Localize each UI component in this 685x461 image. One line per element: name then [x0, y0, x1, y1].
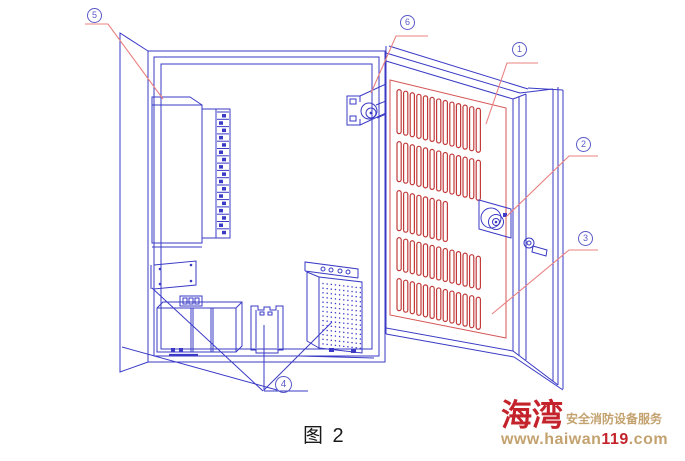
mounting-panel	[152, 97, 216, 247]
cabinet-body	[120, 33, 385, 372]
callout-4-label: 4	[281, 380, 287, 390]
callout-6-label: 6	[405, 18, 410, 27]
callout-2: 2	[576, 137, 591, 152]
watermark-url-suffix: .com	[629, 431, 668, 448]
watermark-url-number: 119	[601, 431, 628, 448]
hinge	[347, 84, 386, 125]
din-terminal	[251, 306, 283, 353]
callout-6: 6	[400, 15, 415, 30]
callout-4: 4	[275, 376, 292, 393]
door-latch	[524, 238, 547, 256]
relay-plate	[151, 261, 196, 289]
watermark-url[interactable]: www.haiwan119.com	[501, 431, 683, 449]
callout-5: 5	[87, 8, 102, 23]
callout-3-label: 3	[583, 234, 588, 243]
cabinet-door	[386, 46, 563, 390]
watermark-url-prefix: www.haiwan	[501, 431, 601, 448]
callout-3: 3	[578, 231, 593, 246]
figure-canvas: 5 6 1 2 3 4 图 2 海湾 安全消防设备服务 www.haiwan11…	[0, 0, 685, 461]
callout-2-label: 2	[581, 140, 586, 149]
callout-5-label: 5	[92, 11, 97, 20]
callout-1: 1	[512, 42, 527, 57]
callout-1-label: 1	[517, 45, 522, 54]
watermark-tagline: 安全消防设备服务	[566, 410, 662, 427]
watermark-brand-line: 海湾 安全消防设备服务	[501, 401, 683, 430]
watermark: 海湾 安全消防设备服务 www.haiwan119.com	[501, 401, 683, 449]
figure-caption: 图 2	[303, 419, 346, 448]
terminal-strip	[216, 109, 230, 238]
watermark-brand: 海湾	[501, 401, 563, 430]
